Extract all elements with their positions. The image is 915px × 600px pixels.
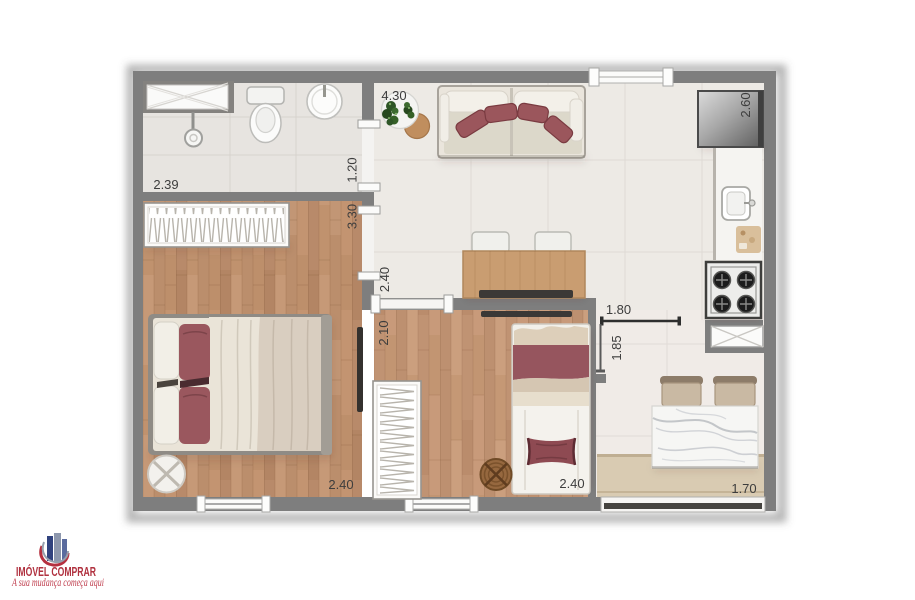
svg-text:1.70: 1.70 — [731, 481, 756, 496]
svg-text:A sua mudança começa aqui: A sua mudança começa aqui — [11, 575, 104, 589]
svg-text:1.80: 1.80 — [606, 302, 631, 317]
svg-text:2.10: 2.10 — [376, 320, 391, 345]
svg-text:1.85: 1.85 — [609, 335, 624, 360]
svg-text:1.20: 1.20 — [345, 157, 360, 182]
svg-text:2.40: 2.40 — [559, 476, 584, 491]
svg-text:2.40: 2.40 — [328, 477, 353, 492]
svg-text:2.40: 2.40 — [377, 267, 392, 292]
svg-text:4.30: 4.30 — [381, 88, 406, 103]
svg-text:2.39: 2.39 — [153, 177, 178, 192]
svg-text:3.30: 3.30 — [345, 204, 360, 229]
svg-text:2.60: 2.60 — [738, 92, 753, 117]
